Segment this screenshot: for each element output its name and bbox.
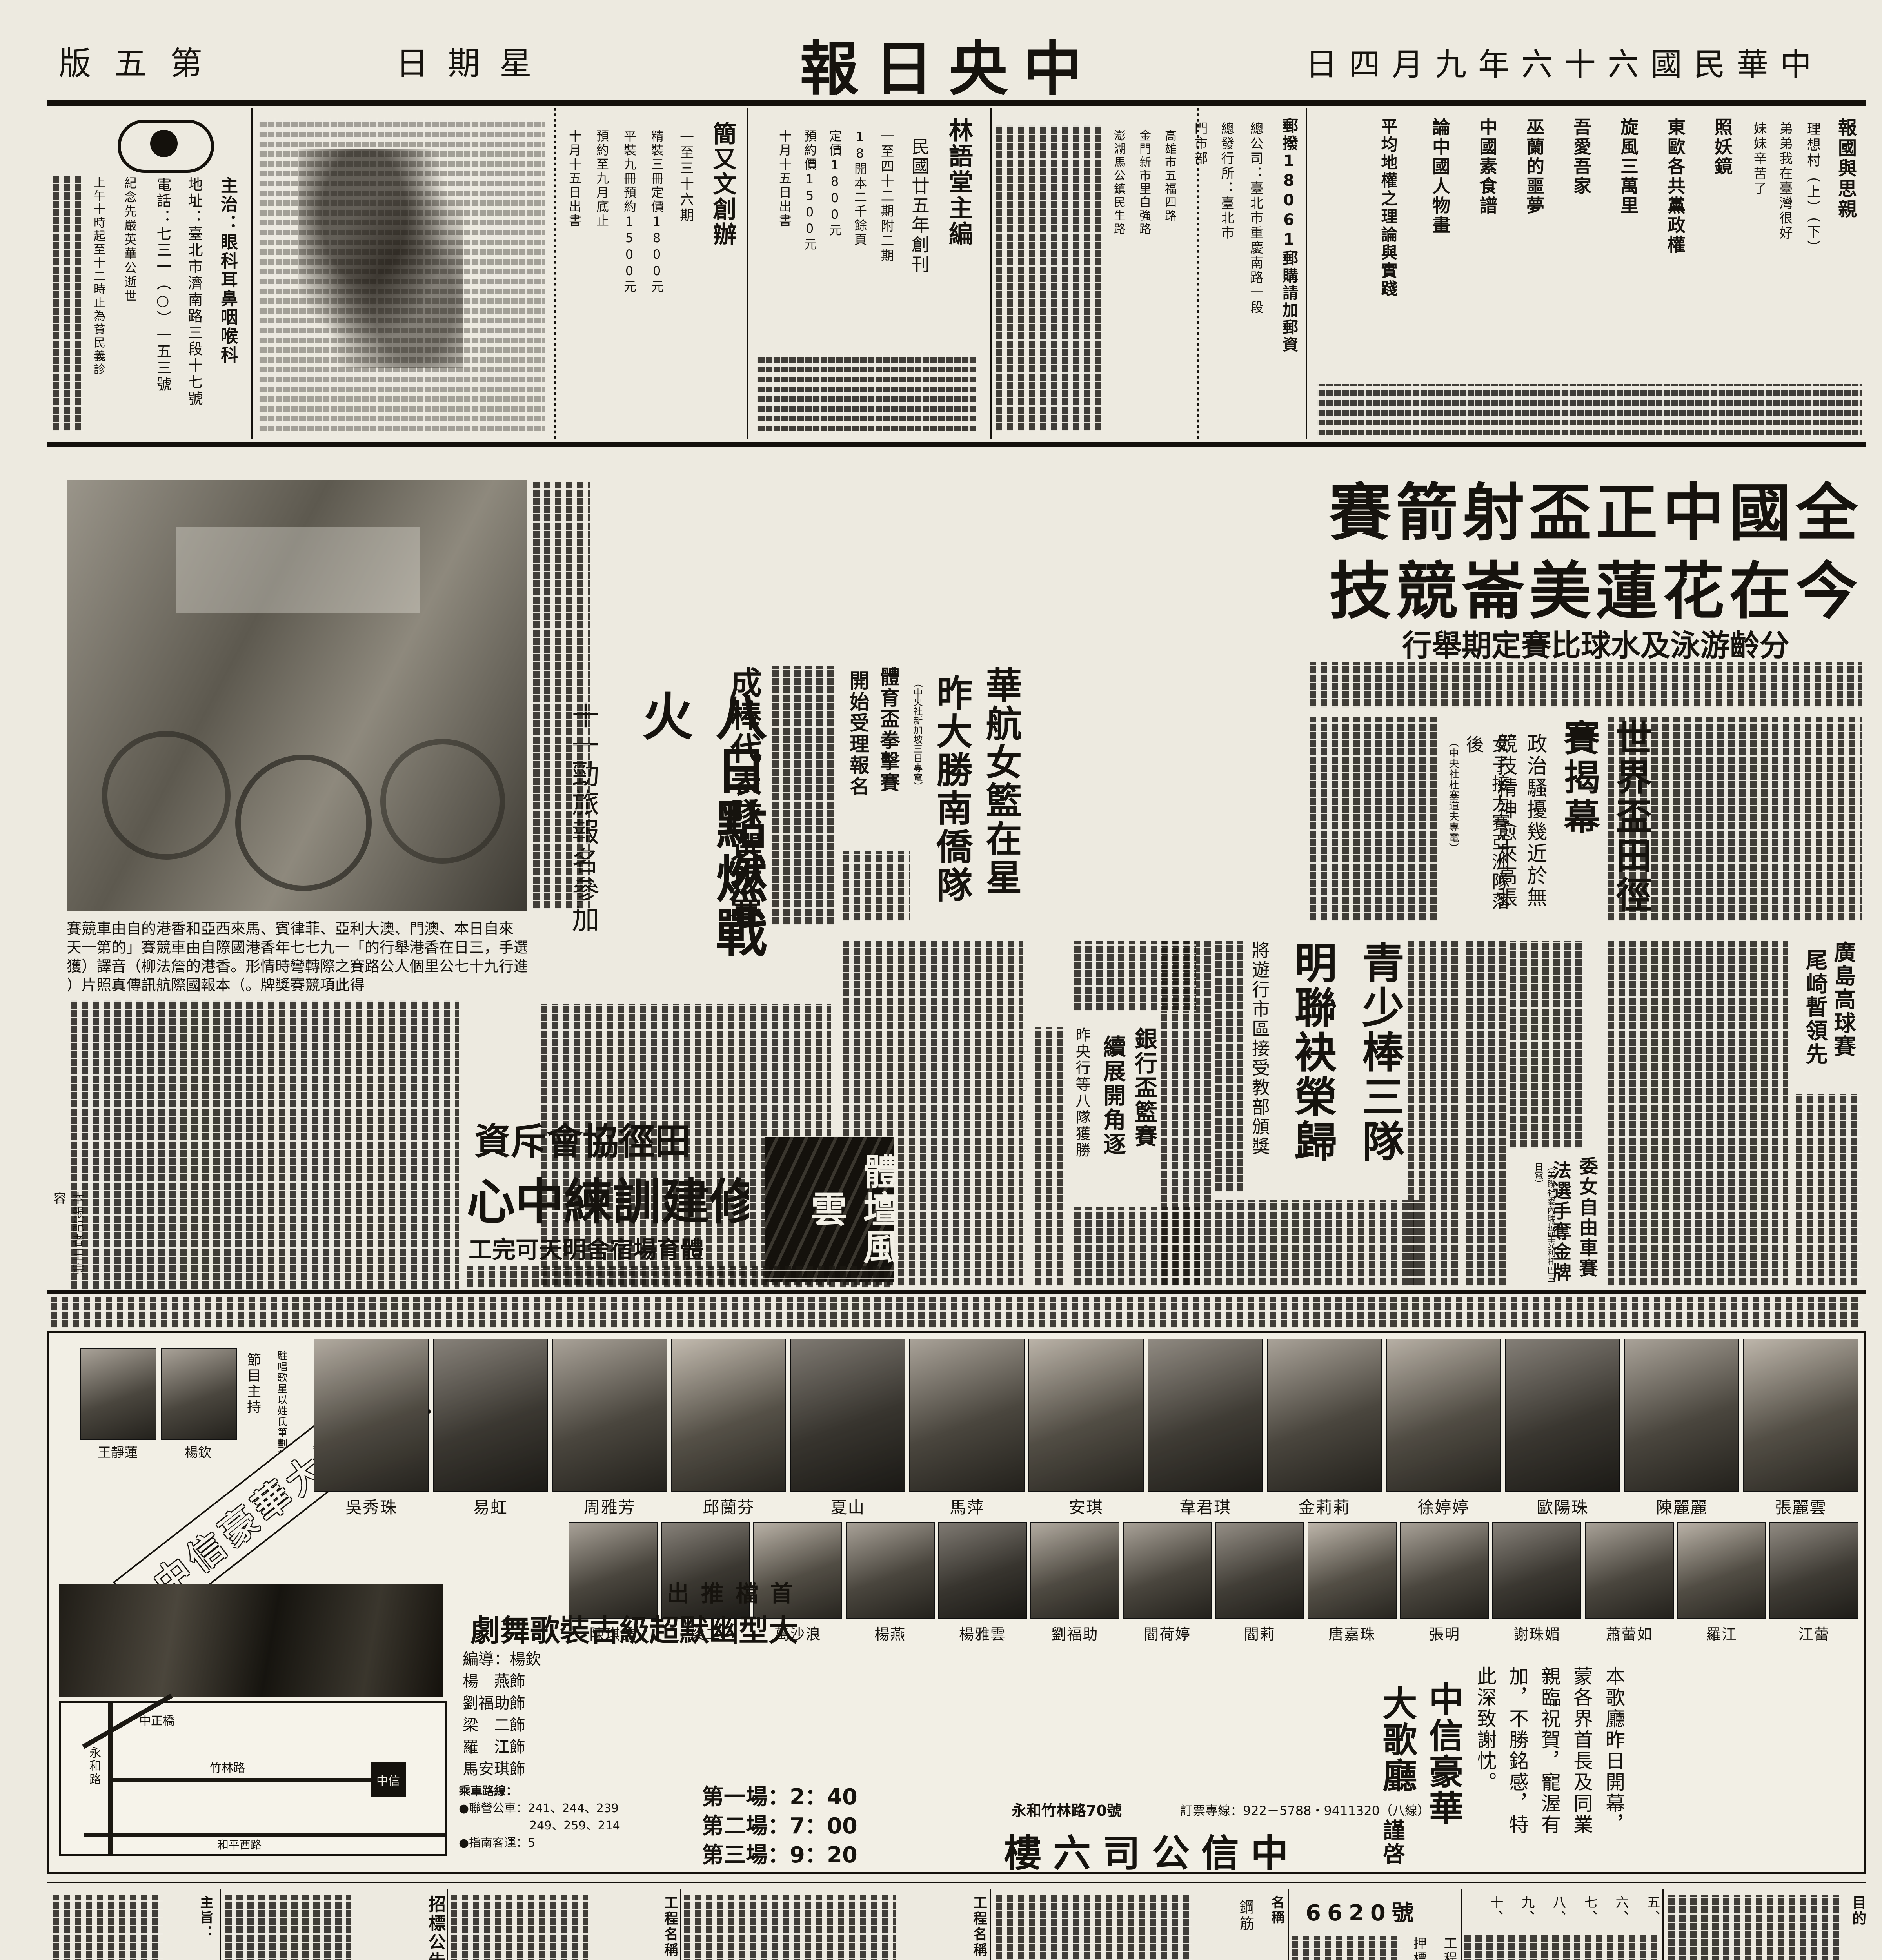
magazine-item: 十月十五日出書 (565, 129, 583, 365)
magazine-editor: 林語堂主編 (941, 118, 976, 329)
photo-caption-line: 賽競車由自的港香和亞西來馬、賓律菲、亞利大澳、門澳、本日自來 (67, 916, 527, 938)
body-text (1310, 717, 1439, 921)
notice-text (1668, 1895, 1841, 1960)
mailorder-office: 總公司：臺北市重慶南路一段 (1246, 122, 1265, 404)
main-subhead: 行舉期定賽比球水及泳游齡分 (1341, 621, 1851, 664)
showtime: 第二場：7：00 (702, 1812, 976, 1841)
item-number: 六、 (1611, 1895, 1631, 1931)
notices-strip (51, 1297, 1862, 1328)
book-title: 平均地權之理論與實踐 (1376, 118, 1400, 384)
cal-headline-1: 華航女籃在星 (975, 666, 1027, 917)
cast-row: 梁 二飾 (463, 1714, 667, 1736)
magazine-founder: 簡又文創辦 (706, 122, 740, 365)
magazine-item: 一至三十六期 (675, 129, 696, 372)
magazine-founded: 民國廿五年創刊 (906, 137, 932, 341)
boxing-headline-1: 體育盃拳擊賽 (874, 666, 903, 839)
col-divider (680, 1889, 681, 1960)
cast-list: 編導：楊欽 楊 燕飾 劉福助飾 梁 二飾 羅 江飾 馬安琪飾 (463, 1648, 667, 1780)
col-divider (1461, 1889, 1462, 1960)
body-text (533, 482, 590, 909)
magazine-item: 平裝九冊預約1500元 (620, 129, 638, 380)
thanks-col: 此深致謝忱。 (1471, 1666, 1499, 1862)
thanks-signature: 謹啓 (1376, 1819, 1408, 1870)
youth-subhead: 將遊行市區接受教部頒獎 (1247, 941, 1273, 1192)
youth-headline-2: 明聯袂榮歸 (1281, 941, 1342, 1176)
item-number: 七、 (1580, 1895, 1599, 1931)
cast-row: 羅 江飾 (463, 1736, 667, 1758)
map-label-road2: 竹林路 (210, 1758, 245, 1775)
item-number: 十、 (1486, 1895, 1505, 1931)
hosts-label: 節目主持 (242, 1352, 263, 1443)
golf-headline-2: 尾崎暫領先 (1799, 949, 1831, 1082)
magazine-item: 定價1800元 (826, 129, 844, 318)
body-text (1215, 1200, 1419, 1286)
showtimes: 第一場：2：40 第二場：7：00 第三場：9：20 (702, 1783, 976, 1870)
mailorder-branch: 高雄市五福四路 (1161, 129, 1178, 333)
cal-dateline: （中央社新加坡三日專電） (910, 678, 924, 913)
cycling-dateline: （美聯社委內瑞拉聖克利托巴三日電） (1531, 1162, 1557, 1288)
table-header: 名稱 (1267, 1895, 1286, 1950)
adultbb-headline-2: 八日點燃戰火 (627, 690, 774, 996)
worldcup-dateline: （中央社杜塞道夫專電） (1446, 737, 1461, 906)
cast-row: 編導：楊欽 (463, 1648, 667, 1670)
magazine-prices (757, 353, 976, 431)
notice-token: 押標金 (1409, 1936, 1428, 1960)
photo-caption-line: ）片照真傳訊航際國報本（。牌獎賽競項此得 (67, 973, 527, 995)
body-text (1510, 941, 1584, 1149)
worldcup-sub1: 政治騷擾幾近於無 (1520, 733, 1550, 913)
host-name: 王靜蓮 (80, 1442, 155, 1461)
thanks-col: 蒙各界首長及同業 (1568, 1666, 1596, 1862)
bus-line: ●聯營公車：241、244、239 (459, 1800, 678, 1817)
bankcup-headline-1: 銀行盃籃賽 (1128, 1027, 1161, 1184)
clinic-phone: 電話：七三一（○）一五三號 (152, 176, 174, 435)
book-title: 妹妹辛苦了 (1749, 122, 1769, 286)
youth-headline-1: 青少棒三隊 (1349, 941, 1410, 1176)
mailorder-branch: 金門新市里自強路 (1135, 129, 1152, 333)
clinic-specialty: 主治：眼科耳鼻咽喉科 (215, 176, 240, 435)
book-title: 東歐各共黨政權 (1662, 118, 1688, 337)
main-headline-1: 賽箭射盃正中國全 (1325, 463, 1866, 552)
magazine-item: 18開本二千餘頁 (851, 129, 869, 349)
thanks-col: 親臨祝賀，寵渥有 (1535, 1666, 1564, 1862)
ad-divider (747, 108, 748, 439)
mailorder-postal: 郵撥18061郵購請加郵資 (1277, 118, 1300, 416)
host-portrait (80, 1348, 156, 1440)
host-portrait (161, 1348, 237, 1440)
cyclists-photo (67, 480, 527, 911)
photo-caption-line: 獲）譯音（柳法詹的港香。形情時彎轉際之賽路公人個里公七十九行進 (67, 954, 527, 976)
col-divider (990, 1889, 991, 1960)
location-map: 中正橋 永和路 竹林路 中信 和平西路 (59, 1701, 447, 1856)
book-title: 理想村（上）（下） (1802, 122, 1822, 341)
premiere-line-1: 出推檔首 (667, 1575, 910, 1608)
mailorder-store: 門市部 (1190, 122, 1210, 223)
bottom-rule (47, 1882, 1866, 1883)
notice-token: 工程名稱 (968, 1895, 989, 1960)
body-text (772, 666, 835, 925)
clinic-note: 上午十時起至十二時止為貧民義診 (89, 176, 107, 435)
paper-title: 報日央中 (800, 22, 1098, 107)
body-text (1215, 941, 1243, 1192)
bus-line: ●指南客運：5 (459, 1835, 678, 1852)
notice-text (684, 1895, 896, 1960)
cast-row: 馬安琪飾 (463, 1758, 667, 1780)
section-rule (47, 442, 1866, 447)
notice-text (451, 1895, 588, 1960)
mailorder-branch: 澎湖馬公鎮民生路 (1110, 129, 1127, 333)
notice-number: 6620號 (1306, 1895, 1459, 1927)
main-headline-2: 技競崙美蓮花在今 (1325, 541, 1866, 631)
col-divider (220, 1889, 221, 1960)
calligraphy-blotch (298, 149, 463, 368)
magazine-item: 精裝三冊定價1800元 (648, 129, 666, 380)
premiere-line-2: 劇舞歌裝古級超默幽型大 (470, 1606, 921, 1650)
clinic-address: 地址：臺北市濟南路三段十七號 (183, 176, 205, 435)
body-text (1310, 662, 1862, 708)
performer-row-1 (314, 1339, 1858, 1492)
book-title: 吾愛吾家 (1568, 118, 1594, 259)
body-text (1035, 1027, 1066, 1286)
photo-caption-line: 天一第的」賽競車由自際國港香年七七九一「的行舉港香在日三，手選 (67, 935, 527, 957)
thanks-col: 加，不勝銘感，特 (1503, 1666, 1531, 1862)
book-title: 旋風三萬里 (1615, 118, 1641, 282)
bus-header: 乘車路線： (459, 1783, 678, 1800)
notice-title: 目的 (1847, 1895, 1868, 1946)
worldcup-sub3: 女子接力賽亞洲隊落後 (1461, 735, 1513, 919)
body-text (1608, 941, 1788, 1286)
cast-row: 劉福助飾 (463, 1692, 667, 1714)
clinic-note: 紀念先嚴英華公逝世 (121, 176, 139, 427)
thanks-col: 本歌廳昨日開幕， (1600, 1666, 1628, 1862)
book-title: 中國素食譜 (1474, 118, 1500, 282)
notice-token: 工程名稱 (1440, 1936, 1459, 1960)
ad-divider (990, 108, 992, 439)
map-label-bridge: 中正橋 (139, 1711, 174, 1728)
thanks-signature: 大歌廳 (1372, 1686, 1422, 1819)
showtime: 第三場：9：20 (702, 1841, 976, 1870)
page-number: 版五第 (59, 37, 216, 84)
mailorder-smalltext (996, 125, 1102, 431)
map-marker-venue: 中信 (371, 1762, 406, 1797)
bus-line: 249、259、214 (459, 1817, 678, 1835)
item-number: 八、 (1549, 1895, 1568, 1931)
item-number: 五、 (1643, 1895, 1662, 1931)
showtime: 第一場：2：40 (702, 1783, 976, 1812)
ad-divider (251, 108, 253, 439)
notice-text (996, 1895, 1192, 1960)
section-rule (47, 1290, 1866, 1294)
body-text (467, 1266, 894, 1288)
notice-token: 主旨： (196, 1895, 215, 1958)
map-label-road3: 和平西路 (218, 1837, 262, 1852)
stage-photo (59, 1584, 443, 1697)
newspaper-page: 版五第 日期星 報日央中 日四月九年六十六國民華中 主治：眼科耳鼻咽喉科 地址：… (0, 0, 1882, 1960)
body-text (1074, 941, 1196, 1011)
masthead-rule (47, 100, 1866, 106)
body-text (843, 851, 910, 921)
body-text (71, 1000, 459, 1290)
golf-headline-1: 廣島高球賽 (1827, 941, 1859, 1074)
book-title: 弟弟我在臺灣很好 (1775, 122, 1795, 341)
map-label-road1: 永和路 (85, 1746, 102, 1825)
column-headline-3: 工完可天明舍宿場育體 (469, 1231, 747, 1265)
table-value: 鋼筋 (1235, 1899, 1257, 1954)
notice-text (53, 1895, 163, 1960)
magazine-item: 十月十五日出書 (776, 129, 794, 333)
bankcup-subhead: 昨央行等八隊獲勝 (1071, 1027, 1093, 1200)
cast-row: 楊 燕飾 (463, 1670, 667, 1692)
col-divider (1288, 1889, 1289, 1960)
magazine-item: 一至四十二期附二期 (877, 129, 896, 372)
weekday: 日期星 (396, 37, 561, 84)
mailorder-distributor: 總發行所：臺北市 (1217, 122, 1236, 341)
body-text (1466, 941, 1506, 1286)
bankcup-headline-2: 續展開角逐 (1096, 1035, 1129, 1192)
notice-title: 招標公告 (423, 1895, 448, 1960)
magazine-item: 預約價1500元 (801, 129, 819, 333)
col-divider (1662, 1889, 1664, 1960)
column-headline-2: 心中練訓建修 (467, 1162, 749, 1233)
cal-headline-2: 昨大勝南僑隊 (925, 674, 977, 925)
book-title: 照妖鏡 (1709, 118, 1735, 259)
magazine-item: 預約至九月底止 (593, 129, 611, 365)
boxing-headline-2: 開始受理報名 (844, 670, 872, 843)
cycling-headline-1: 委女自由車賽 (1573, 1156, 1600, 1286)
notice-text (1464, 1935, 1659, 1960)
ad-divider-wavy (554, 108, 556, 439)
performer-names-row-1: 吳秀珠易虹 周雅芳邱蘭芬 夏山馬萍 安琪韋君琪 金莉莉徐婷婷 歐陽珠陳麗麗 張麗… (314, 1494, 1858, 1518)
column-headline-1: 資斥會協徑田 (474, 1112, 749, 1165)
host-name: 楊欽 (161, 1442, 235, 1461)
ad-divider (1306, 108, 1307, 439)
issue-date: 日四月九年六十六國民華中 (1306, 39, 1870, 85)
item-number: 九、 (1517, 1895, 1537, 1931)
notice-text (225, 1895, 351, 1960)
book-title: 巫蘭的噩夢 (1521, 118, 1547, 282)
notice-token: 工程名稱 (659, 1895, 680, 1960)
body-text (1796, 1094, 1862, 1286)
books-prices (1317, 384, 1862, 435)
clinic-smalltext (53, 176, 84, 431)
bus-routes: 乘車路線： ●聯營公車：241、244、239 249、259、214 ●指南客… (459, 1783, 678, 1852)
sports-column-logo: 體壇風雲 (765, 1137, 894, 1282)
worldcup-headline: 世界盃田徑賽揭幕 (1553, 719, 1657, 923)
book-title: 報國與思親 (1832, 118, 1859, 321)
venue-address: 永和竹林路70號 (1012, 1798, 1122, 1820)
thanks-signature: 中信豪華 (1419, 1682, 1468, 1854)
eye-icon (118, 120, 214, 173)
book-title: 論中國人物畫 (1427, 118, 1453, 314)
notice-text (1292, 1936, 1402, 1960)
